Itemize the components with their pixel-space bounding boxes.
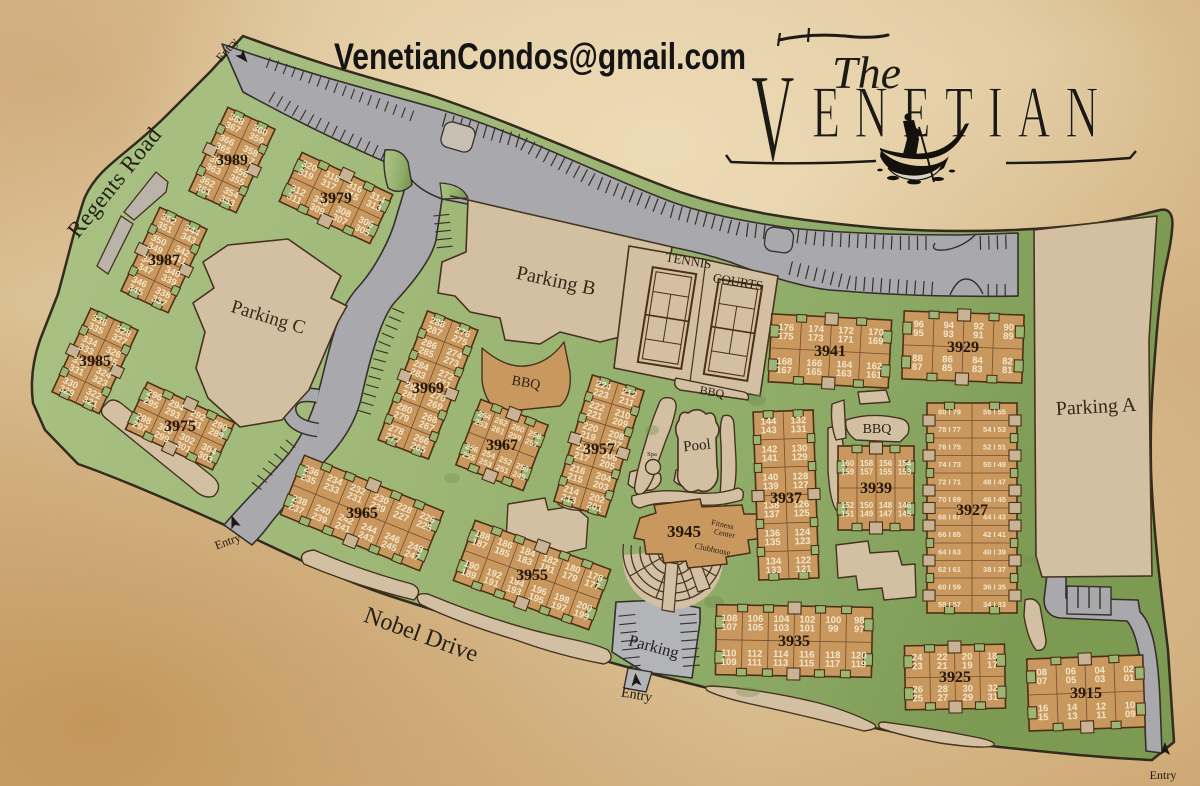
- svg-text:165: 165: [806, 366, 823, 378]
- svg-text:111: 111: [747, 657, 763, 668]
- svg-text:3927: 3927: [956, 502, 988, 519]
- svg-text:109: 109: [721, 657, 737, 668]
- svg-text:23: 23: [912, 661, 923, 672]
- svg-text:95: 95: [913, 328, 925, 339]
- svg-text:123: 123: [795, 536, 811, 548]
- svg-text:3969: 3969: [412, 380, 444, 397]
- svg-text:Pool: Pool: [682, 437, 711, 456]
- svg-text:07: 07: [1037, 676, 1048, 687]
- svg-text:29: 29: [962, 692, 973, 703]
- svg-text:121: 121: [795, 564, 812, 576]
- svg-text:153: 153: [898, 468, 912, 477]
- svg-text:3925: 3925: [939, 669, 971, 686]
- svg-text:13: 13: [1067, 711, 1078, 722]
- svg-text:87: 87: [912, 362, 923, 373]
- svg-text:157: 157: [860, 468, 874, 477]
- svg-text:54 I 53: 54 I 53: [983, 425, 1006, 434]
- svg-text:89: 89: [1003, 331, 1014, 342]
- svg-text:52 I 51: 52 I 51: [983, 442, 1006, 451]
- svg-text:64 I 63: 64 I 63: [938, 547, 961, 556]
- svg-text:72 I 71: 72 I 71: [938, 477, 961, 486]
- svg-text:175: 175: [777, 331, 794, 343]
- svg-text:151: 151: [841, 510, 855, 519]
- svg-text:125: 125: [794, 508, 811, 520]
- svg-text:3939: 3939: [860, 480, 892, 497]
- svg-text:78 I 77: 78 I 77: [938, 425, 961, 434]
- svg-text:3989: 3989: [216, 152, 248, 169]
- svg-text:3935: 3935: [778, 633, 810, 650]
- svg-text:3957: 3957: [583, 441, 615, 458]
- svg-text:76 I 75: 76 I 75: [938, 442, 961, 451]
- svg-text:50 I 49: 50 I 49: [983, 460, 1006, 469]
- svg-text:3955: 3955: [516, 567, 548, 584]
- svg-text:3945: 3945: [667, 522, 701, 541]
- svg-text:133: 133: [766, 565, 782, 577]
- svg-text:38 I 37: 38 I 37: [983, 565, 1006, 574]
- svg-text:3965: 3965: [346, 505, 378, 522]
- svg-text:115: 115: [799, 658, 815, 669]
- svg-text:3929: 3929: [947, 339, 979, 356]
- svg-text:161: 161: [866, 370, 883, 382]
- svg-text:143: 143: [761, 425, 777, 437]
- svg-text:152: 152: [841, 501, 855, 510]
- svg-text:159: 159: [841, 468, 855, 477]
- svg-text:135: 135: [765, 537, 782, 549]
- svg-text:17: 17: [987, 660, 998, 671]
- svg-text:119: 119: [851, 659, 867, 670]
- svg-text:01: 01: [1124, 673, 1136, 684]
- svg-text:158: 158: [860, 459, 874, 468]
- svg-text:56 I 55: 56 I 55: [983, 407, 1006, 416]
- svg-text:60 I 59: 60 I 59: [938, 582, 961, 591]
- svg-text:3941: 3941: [814, 343, 846, 360]
- svg-text:42 I 41: 42 I 41: [983, 530, 1006, 539]
- svg-text:58 I 57: 58 I 57: [938, 600, 961, 609]
- svg-text:131: 131: [791, 424, 808, 436]
- svg-text:3985: 3985: [79, 353, 111, 370]
- svg-text:146: 146: [898, 501, 912, 510]
- svg-text:85: 85: [942, 363, 954, 374]
- svg-text:48 I 47: 48 I 47: [983, 477, 1006, 486]
- svg-text:74 I 73: 74 I 73: [938, 460, 961, 469]
- svg-text:40 I 39: 40 I 39: [983, 547, 1006, 556]
- svg-text:107: 107: [721, 622, 737, 633]
- svg-text:145: 145: [898, 510, 912, 519]
- svg-text:113: 113: [773, 658, 789, 669]
- svg-text:15: 15: [1038, 712, 1050, 723]
- svg-text:150: 150: [860, 501, 874, 510]
- svg-text:66 I 65: 66 I 65: [938, 530, 961, 539]
- svg-text:25: 25: [912, 693, 923, 704]
- svg-text:80 I 79: 80 I 79: [938, 407, 961, 416]
- svg-text:09: 09: [1125, 709, 1136, 720]
- svg-text:81: 81: [1002, 365, 1014, 376]
- svg-text:36 I 35: 36 I 35: [983, 582, 1006, 591]
- svg-text:Parking A: Parking A: [1055, 394, 1137, 420]
- svg-text:155: 155: [879, 468, 893, 477]
- svg-text:3987: 3987: [148, 252, 180, 269]
- svg-text:129: 129: [792, 452, 808, 464]
- svg-text:V: V: [751, 49, 795, 188]
- svg-text:160: 160: [841, 459, 855, 468]
- svg-text:3937: 3937: [770, 490, 802, 507]
- svg-text:03: 03: [1095, 674, 1106, 685]
- svg-text:BBQ: BBQ: [863, 422, 892, 437]
- svg-text:Entry: Entry: [1150, 768, 1177, 782]
- svg-text:27: 27: [937, 693, 948, 704]
- svg-text:3915: 3915: [1070, 685, 1102, 702]
- svg-text:105: 105: [747, 622, 764, 633]
- svg-text:156: 156: [879, 459, 893, 468]
- svg-text:137: 137: [764, 509, 780, 521]
- svg-text:149: 149: [860, 510, 874, 519]
- svg-text:83: 83: [972, 364, 983, 375]
- svg-text:154: 154: [898, 459, 912, 468]
- svg-text:3979: 3979: [320, 190, 352, 207]
- svg-text:148: 148: [879, 501, 893, 510]
- svg-text:97: 97: [854, 624, 865, 635]
- svg-text:99: 99: [828, 624, 839, 635]
- svg-text:34 I 33: 34 I 33: [983, 600, 1006, 609]
- svg-text:31: 31: [987, 692, 998, 703]
- svg-text:3967: 3967: [486, 437, 518, 454]
- svg-text:147: 147: [879, 510, 893, 519]
- svg-text:169: 169: [867, 336, 883, 348]
- svg-text:Spa: Spa: [647, 451, 657, 458]
- svg-text:167: 167: [776, 365, 792, 377]
- svg-text:117: 117: [825, 659, 841, 670]
- svg-text:3975: 3975: [164, 418, 196, 435]
- svg-text:VenetianCondos@gmail.com: VenetianCondos@gmail.com: [334, 37, 746, 78]
- svg-text:11: 11: [1096, 710, 1107, 721]
- svg-text:62 I 61: 62 I 61: [938, 565, 961, 574]
- svg-text:141: 141: [762, 453, 779, 465]
- svg-text:163: 163: [836, 368, 852, 380]
